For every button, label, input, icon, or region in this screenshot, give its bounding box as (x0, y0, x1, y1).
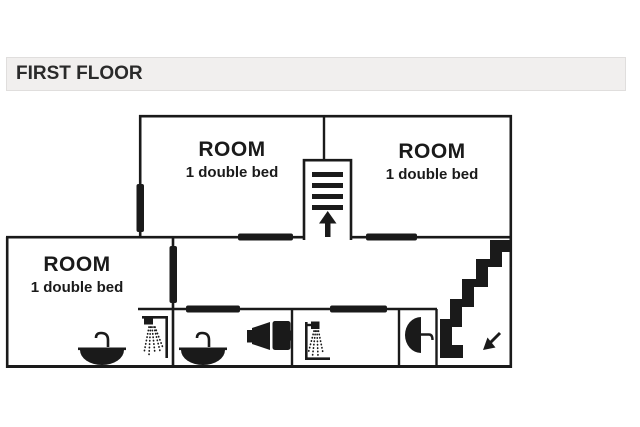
door-lower-left-room (170, 246, 178, 303)
room-beds: 1 double bed (139, 164, 325, 182)
toilet-top-icon (405, 317, 433, 353)
shower-icon (142, 317, 167, 358)
floor-plan-drawing (0, 0, 640, 427)
room-name: ROOM (139, 139, 325, 161)
room-beds: 1 double bed (352, 166, 512, 184)
door-middle-bathroom (186, 306, 240, 313)
door-top-left-room (238, 234, 293, 241)
door-right-bathroom (330, 306, 387, 313)
door-markers (137, 184, 418, 313)
floor-plan-page: FIRST FLOOR (0, 0, 640, 427)
room-label-top-left: ROOM 1 double bed (139, 139, 325, 182)
shower-icon (306, 322, 330, 359)
room-name: ROOM (8, 254, 146, 276)
up-arrow-icon (319, 211, 337, 237)
toilet-side-icon (247, 321, 293, 350)
room-beds: 1 double bed (8, 279, 146, 297)
door-top-left-room-side (137, 184, 145, 232)
sink-icon (179, 333, 227, 365)
door-top-right-room (366, 234, 417, 241)
staircase-down-icon (440, 240, 512, 358)
sink-icon (78, 333, 126, 365)
down-left-arrow-icon (483, 333, 500, 350)
room-label-top-right: ROOM 1 double bed (352, 141, 512, 184)
room-name: ROOM (352, 141, 512, 163)
room-label-lower-left: ROOM 1 double bed (8, 254, 146, 297)
